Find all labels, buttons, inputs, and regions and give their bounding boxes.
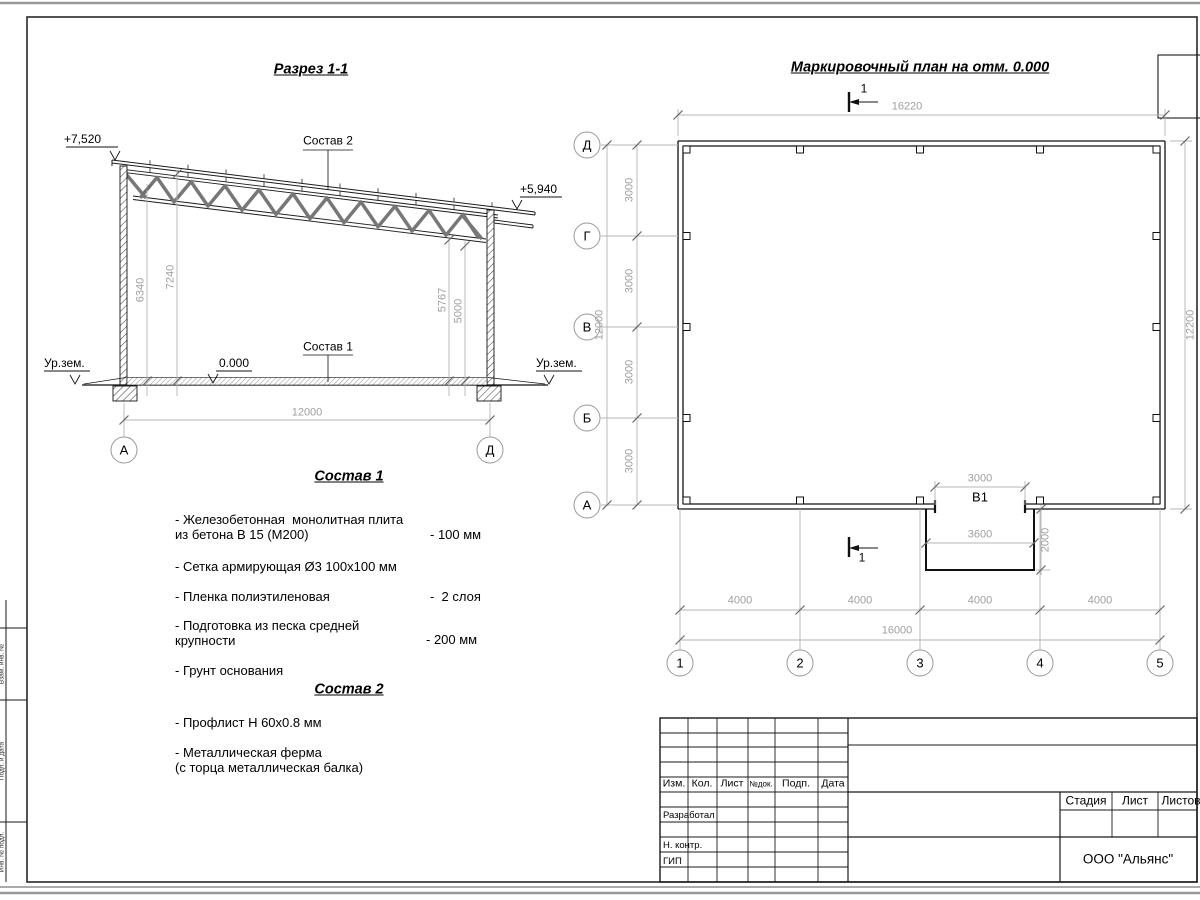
- plan-bay-left-1: 3000: [623, 178, 638, 202]
- composition2-item2: - Металлическая ферма (с торца металличе…: [175, 745, 363, 775]
- plan-dim-height-total: 12200: [1184, 310, 1199, 341]
- zero-level-label: 0.000: [219, 356, 249, 371]
- titleblock-stage-header: Стадия: [1066, 794, 1107, 809]
- composition1-item1: - Железобетонная монолитная плита из бет…: [175, 512, 403, 542]
- composition1-item4: - Подготовка из песка средней крупности: [175, 618, 359, 648]
- plan-axis-letter-v: В: [583, 320, 592, 335]
- foundation-left: [113, 386, 137, 401]
- plan-axis-number-4: 4: [1036, 656, 1043, 671]
- plan-dim-width-total: 16220: [892, 100, 923, 115]
- titleblock-company: ООО "Альянс": [1083, 852, 1173, 867]
- plan-bay-left-2: 3000: [623, 269, 638, 293]
- purlin-ticks: [150, 160, 492, 209]
- roof-composition-label: Состав 2: [303, 134, 353, 149]
- composition1-item4-value: - 200 мм: [426, 632, 477, 647]
- truss-end-brace-left: [126, 174, 146, 198]
- plan-dim-left-overall: 12000: [593, 310, 608, 341]
- plan-bay-left-3: 3000: [623, 360, 638, 384]
- composition1-item2: - Сетка армирующая Ø3 100х100 мм: [175, 559, 397, 574]
- platform-depth-dim: 2000: [1039, 528, 1054, 552]
- plan-dim-bottom-overall: 16000: [882, 624, 913, 639]
- plan-axis-letter-b: Б: [583, 411, 592, 426]
- plan-bay-bottom-4: 4000: [1088, 594, 1112, 609]
- titleblock-col-data: Дата: [821, 777, 844, 792]
- plan-dim-ticks: [603, 111, 1190, 645]
- plan-axis-number-1: 1: [676, 656, 683, 671]
- floor-composition-label: Состав 1: [303, 340, 353, 355]
- doc-number-box: [1158, 55, 1200, 118]
- titleblock-col-list: Лист: [721, 777, 744, 792]
- titleblock-col-ndok: №док.: [749, 777, 772, 792]
- platform-width-dim: 3600: [968, 528, 992, 543]
- plan-title: Маркировочный план на отм. 0.000: [791, 61, 1049, 76]
- gate-width-dim: 3000: [968, 472, 992, 487]
- section-span-dim: 12000: [292, 406, 323, 421]
- titleblock-row-ncontr: Н. контр.: [663, 840, 702, 851]
- plan-cut-mark-top: 1: [861, 82, 868, 97]
- titleblock-sheet-header: Лист: [1122, 794, 1148, 809]
- ground-level-label-left: Ур.зем.: [44, 356, 85, 371]
- section-axis-label-left: А: [120, 443, 129, 458]
- plan-axis-letter-d: Д: [583, 138, 592, 153]
- composition1-item3: - Пленка полиэтиленовая: [175, 589, 330, 604]
- plan-bay-bottom-2: 4000: [848, 594, 872, 609]
- section-wall-right: [487, 210, 494, 385]
- plan-axis-letter-g: Г: [583, 229, 590, 244]
- titleblock-row-gip: ГИП: [663, 856, 682, 867]
- plan-axis-letter-a: А: [583, 498, 592, 513]
- roof-sheeting: [112, 160, 535, 215]
- sidestamp-label-vzam: Взам. инв. №: [0, 644, 10, 684]
- titleblock-col-izm: Изм.: [663, 777, 686, 792]
- ground-level-label-right: Ур.зем.: [536, 356, 577, 371]
- plan-axis-number-2: 2: [796, 656, 803, 671]
- section-cut-marks: [849, 92, 878, 557]
- plan-axis-bubbles: [574, 132, 1173, 676]
- edge-beam-right: [494, 220, 533, 228]
- section-dim-left-inner: 6340: [134, 278, 149, 302]
- section-dim-right-outer: 5000: [452, 299, 467, 323]
- plan-axis-number-5: 5: [1156, 656, 1163, 671]
- plan-bay-left-4: 3000: [623, 449, 638, 473]
- section-title: Разрез 1-1: [274, 63, 348, 78]
- section-axis-label-right: Д: [486, 443, 495, 458]
- elevation-top-right: +5,940: [520, 182, 557, 197]
- titleblock-col-kol: Кол.: [692, 777, 713, 792]
- plan-cut-mark-bottom: 1: [859, 551, 866, 566]
- plan-columns: [683, 146, 1160, 504]
- plan-drawing: [574, 92, 1192, 676]
- plan-dim-lines: [607, 109, 1192, 640]
- plan-axis-number-3: 3: [916, 656, 923, 671]
- sidestamp-label-podp: Подп. и дата: [0, 742, 10, 780]
- foundation-right: [477, 386, 501, 401]
- composition1-item5: - Грунт основания: [175, 663, 283, 678]
- elevation-top-left: +7,520: [64, 132, 101, 147]
- titleblock-row-developed: Разработал: [663, 810, 715, 821]
- composition2-heading: Состав 2: [314, 683, 383, 698]
- gate-label: В1: [972, 490, 988, 505]
- sidestamp-label-inv: Инв. № подл.: [0, 832, 10, 873]
- section-dim-left-outer: 7240: [164, 265, 179, 289]
- floor-slab: [127, 378, 487, 386]
- titleblock-sheets-header: Листов: [1162, 794, 1200, 809]
- plan-axis-lines: [601, 145, 1160, 650]
- section-wall-left: [120, 166, 127, 385]
- truss-web: [140, 178, 478, 238]
- plan-walls: [678, 141, 1165, 513]
- drawing-sheet: Разрез 1-1 +7,520 +5,940 Состав 2 Состав…: [0, 0, 1200, 900]
- composition1-item1-value: - 100 мм: [430, 527, 481, 542]
- titleblock-col-podp: Подп.: [782, 777, 810, 792]
- composition2-item1: - Профлист Н 60х0.8 мм: [175, 715, 322, 730]
- ground-and-slab: [82, 378, 548, 402]
- plan-bay-bottom-3: 4000: [968, 594, 992, 609]
- plan-bay-bottom-1: 4000: [728, 594, 752, 609]
- composition1-item3-value: - 2 слоя: [430, 589, 481, 604]
- composition1-heading: Состав 1: [314, 470, 383, 485]
- truss-end-brace-right: [462, 215, 482, 239]
- section-dim-right-inner: 5767: [436, 288, 451, 312]
